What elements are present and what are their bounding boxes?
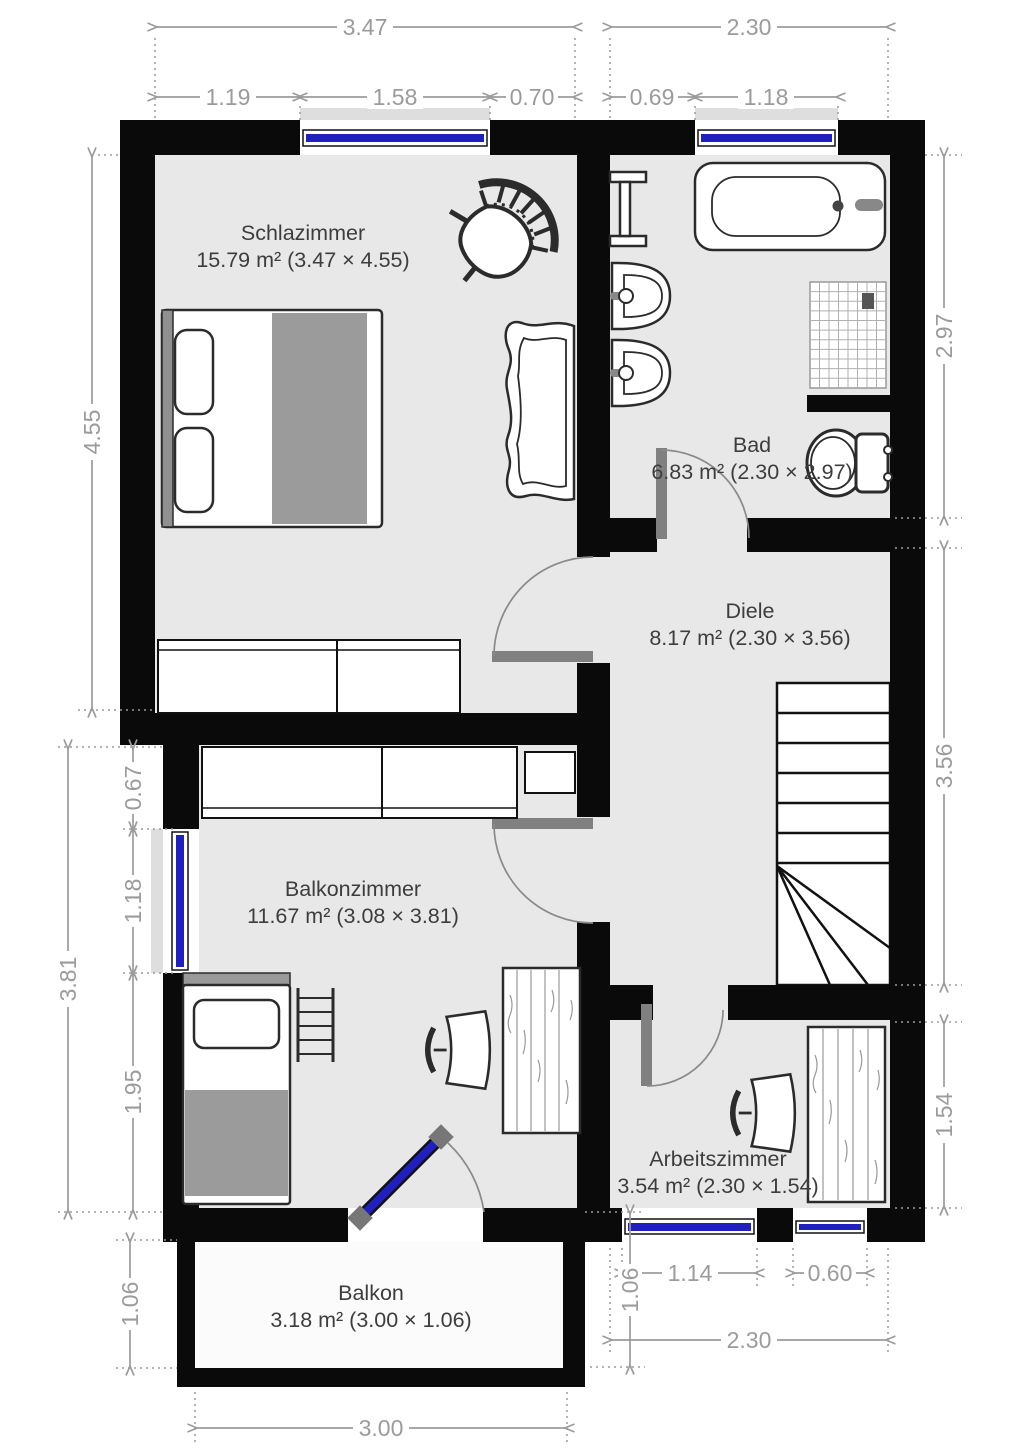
dim-top-left-b: 1.58	[302, 84, 488, 110]
doorway-floor-arbeitszimmer	[653, 985, 728, 1020]
dim-left-bz-b: 1.18	[120, 831, 146, 971]
dim-right-hall: 3.56	[931, 550, 957, 983]
dim-left-bz-a: 0.67	[120, 749, 146, 827]
sink[interactable]	[610, 263, 670, 329]
dim-top-left-c: 0.70	[492, 84, 573, 110]
wavy-mirror-dresser[interactable]	[506, 322, 574, 500]
window-schlazimmer[interactable]	[300, 120, 490, 155]
desk-arbeitszimmer[interactable]	[808, 1027, 885, 1202]
svg-text:1.14: 1.14	[668, 1260, 713, 1286]
room-floor-balkon[interactable]	[195, 1242, 563, 1368]
sink[interactable]	[610, 340, 670, 406]
svg-text:6.83 m² (2.30 × 2.97): 6.83 m² (2.30 × 2.97)	[651, 460, 852, 484]
svg-text:3.81: 3.81	[55, 957, 81, 1002]
window-balkonzimmer[interactable]	[163, 829, 199, 973]
window-arbeitszimmer-large[interactable]	[622, 1208, 757, 1242]
single-bed[interactable]	[183, 973, 290, 1204]
doorway-floor-schlazimmer	[577, 557, 610, 663]
wardrobe-schlazimmer[interactable]	[158, 640, 460, 713]
svg-text:15.79 m² (3.47 × 4.55): 15.79 m² (3.47 × 4.55)	[196, 248, 409, 272]
dim-right-study: 1.54	[931, 1024, 957, 1206]
bathtub[interactable]	[695, 163, 885, 250]
doorway-floor-bad	[657, 518, 747, 552]
svg-text:Balkonzimmer: Balkonzimmer	[285, 877, 421, 901]
dim-top-right-b: 1.18	[697, 84, 836, 110]
svg-text:3.47: 3.47	[343, 14, 388, 40]
desk-balkonzimmer[interactable]	[503, 968, 580, 1133]
dim-bottom-study: 2.30	[612, 1327, 886, 1353]
svg-text:2.30: 2.30	[727, 14, 772, 40]
dim-left-bz-c: 1.95	[120, 975, 146, 1210]
svg-text:1.18: 1.18	[744, 84, 789, 110]
window-bad[interactable]	[695, 120, 838, 155]
svg-text:4.55: 4.55	[79, 410, 105, 455]
dim-left-bedroom: 4.55	[79, 157, 105, 708]
svg-text:1.95: 1.95	[120, 1070, 146, 1115]
svg-text:1.19: 1.19	[206, 84, 251, 110]
dim-right-bath: 2.97	[931, 157, 957, 516]
svg-text:1.06: 1.06	[117, 1282, 143, 1327]
svg-text:Arbeitszimmer: Arbeitszimmer	[649, 1147, 786, 1171]
svg-text:2.30: 2.30	[727, 1327, 772, 1353]
dim-bottom-balcony: 3.00	[197, 1415, 565, 1441]
svg-text:1.18: 1.18	[120, 879, 146, 924]
dim-bottom-window-a: 1.14	[624, 1260, 755, 1286]
svg-text:1.54: 1.54	[931, 1092, 957, 1137]
svg-text:Balkon: Balkon	[338, 1281, 404, 1305]
svg-text:8.17 m² (2.30 × 3.56): 8.17 m² (2.30 × 3.56)	[649, 626, 850, 650]
svg-text:Schlazimmer: Schlazimmer	[241, 221, 365, 245]
svg-text:0.67: 0.67	[120, 766, 146, 811]
svg-text:Diele: Diele	[726, 599, 775, 623]
dim-bottom-window-b: 0.60	[795, 1260, 865, 1286]
svg-text:3.18 m² (3.00 × 1.06): 3.18 m² (3.00 × 1.06)	[270, 1308, 471, 1332]
dim-top-left-total: 3.47	[157, 14, 573, 40]
svg-text:0.69: 0.69	[630, 84, 675, 110]
svg-text:0.70: 0.70	[510, 84, 555, 110]
svg-text:1.58: 1.58	[373, 84, 418, 110]
svg-text:2.97: 2.97	[931, 314, 957, 359]
svg-text:0.60: 0.60	[808, 1260, 853, 1286]
svg-text:3.56: 3.56	[931, 744, 957, 789]
dim-top-left-a: 1.19	[157, 84, 298, 110]
doorway-floor-balkonzimmer	[577, 817, 610, 922]
dim-left-balcony: 1.06	[117, 1242, 143, 1366]
shower[interactable]	[810, 282, 886, 388]
svg-text:Bad: Bad	[733, 433, 771, 457]
double-bed[interactable]	[162, 310, 382, 527]
svg-text:1.06: 1.06	[617, 1268, 643, 1313]
svg-text:3.00: 3.00	[359, 1415, 404, 1441]
dim-top-right-total: 2.30	[612, 14, 886, 40]
svg-text:3.54 m² (2.30 × 1.54): 3.54 m² (2.30 × 1.54)	[617, 1174, 818, 1198]
svg-text:11.67 m² (3.08 × 3.81): 11.67 m² (3.08 × 3.81)	[247, 904, 459, 928]
dim-left-bz-total: 3.81	[55, 749, 81, 1210]
floor-plan: 3.47 1.19 1.58 0.70 2.30 0.69 1.18 1.14	[0, 0, 1024, 1450]
staircase[interactable]	[777, 683, 890, 985]
window-arbeitszimmer-small[interactable]	[793, 1208, 867, 1242]
dim-top-right-a: 0.69	[612, 84, 693, 110]
